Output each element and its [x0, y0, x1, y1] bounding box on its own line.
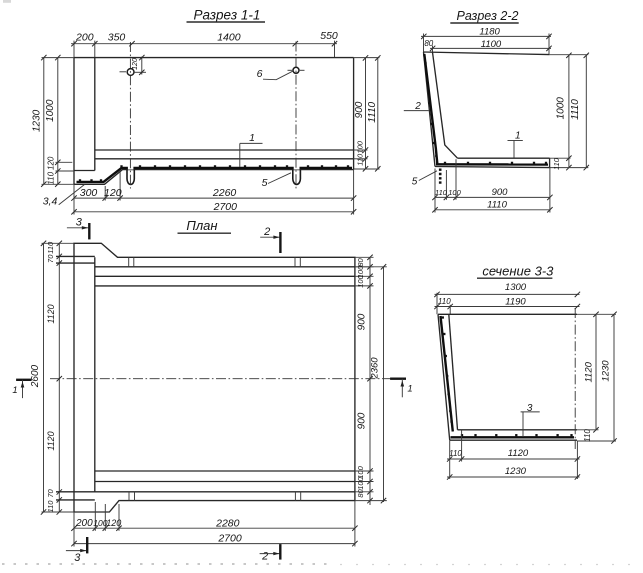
- svg-text:1120: 1120: [46, 431, 56, 450]
- svg-text:2700: 2700: [213, 201, 238, 213]
- svg-text:1110: 1110: [570, 99, 581, 120]
- svg-text:1: 1: [407, 383, 412, 394]
- svg-text:900: 900: [356, 412, 367, 429]
- svg-text:2360: 2360: [369, 357, 380, 380]
- svg-text:сечение 3-3: сечение 3-3: [482, 264, 554, 279]
- svg-text:100: 100: [356, 465, 365, 478]
- svg-text:5: 5: [262, 177, 268, 189]
- svg-text:2: 2: [263, 226, 270, 238]
- svg-text:100: 100: [448, 188, 461, 197]
- svg-text:1120: 1120: [46, 304, 56, 323]
- svg-text:900: 900: [357, 313, 368, 330]
- svg-text:3: 3: [74, 552, 81, 564]
- svg-text:110: 110: [47, 171, 56, 184]
- svg-text:Разрез 1-1: Разрез 1-1: [194, 8, 261, 23]
- svg-text:350: 350: [108, 32, 126, 44]
- svg-text:1000: 1000: [555, 97, 566, 120]
- svg-text:2600: 2600: [30, 364, 41, 388]
- svg-text:1180: 1180: [479, 27, 500, 38]
- svg-text:100: 100: [356, 274, 365, 287]
- svg-text:120: 120: [132, 58, 139, 70]
- svg-text:1120: 1120: [508, 448, 529, 459]
- svg-text:110: 110: [46, 500, 55, 513]
- svg-text:Разрез 2-2: Разрез 2-2: [457, 9, 519, 23]
- svg-text:2280: 2280: [215, 517, 240, 529]
- svg-text:110: 110: [356, 153, 365, 166]
- svg-text:1000: 1000: [45, 99, 56, 122]
- svg-text:1300: 1300: [505, 282, 527, 293]
- svg-text:6: 6: [257, 68, 263, 80]
- svg-text:100: 100: [356, 476, 365, 489]
- svg-text:200: 200: [75, 32, 94, 44]
- svg-text:2: 2: [261, 551, 268, 563]
- svg-text:1100: 1100: [481, 39, 502, 50]
- svg-text:3,4: 3,4: [43, 196, 58, 208]
- svg-text:1190: 1190: [505, 297, 526, 308]
- svg-text:110: 110: [438, 297, 451, 306]
- svg-text:550: 550: [320, 30, 338, 42]
- svg-text:1230: 1230: [601, 360, 612, 382]
- svg-text:1120: 1120: [583, 361, 594, 382]
- svg-text:1110: 1110: [367, 101, 378, 122]
- svg-text:900: 900: [492, 187, 509, 198]
- svg-text:2700: 2700: [217, 533, 242, 545]
- svg-text:120: 120: [104, 187, 122, 199]
- svg-text:1230: 1230: [31, 109, 42, 132]
- svg-text:110: 110: [583, 429, 592, 442]
- svg-text:5: 5: [412, 176, 418, 187]
- svg-text:110: 110: [552, 157, 561, 170]
- svg-text:1230: 1230: [505, 466, 527, 477]
- svg-text:110: 110: [46, 241, 55, 254]
- svg-text:110: 110: [435, 188, 448, 197]
- svg-text:80: 80: [356, 489, 365, 498]
- svg-text:100: 100: [356, 140, 365, 153]
- svg-text:110: 110: [449, 449, 462, 458]
- svg-text:900: 900: [354, 101, 365, 118]
- svg-text:300: 300: [80, 187, 98, 199]
- svg-text:200: 200: [75, 518, 93, 529]
- svg-text:3: 3: [76, 217, 83, 229]
- svg-text:70: 70: [46, 489, 55, 498]
- svg-text:1: 1: [12, 385, 17, 396]
- svg-text:70: 70: [46, 254, 55, 263]
- svg-text:1: 1: [249, 132, 255, 144]
- svg-text:2260: 2260: [212, 187, 237, 199]
- svg-text:1110: 1110: [487, 200, 507, 211]
- svg-text:1: 1: [515, 130, 521, 141]
- svg-text:120: 120: [106, 518, 121, 528]
- svg-text:План: План: [186, 218, 217, 233]
- svg-text:80: 80: [356, 258, 365, 267]
- svg-text:1400: 1400: [217, 31, 241, 43]
- svg-text:120: 120: [47, 156, 56, 170]
